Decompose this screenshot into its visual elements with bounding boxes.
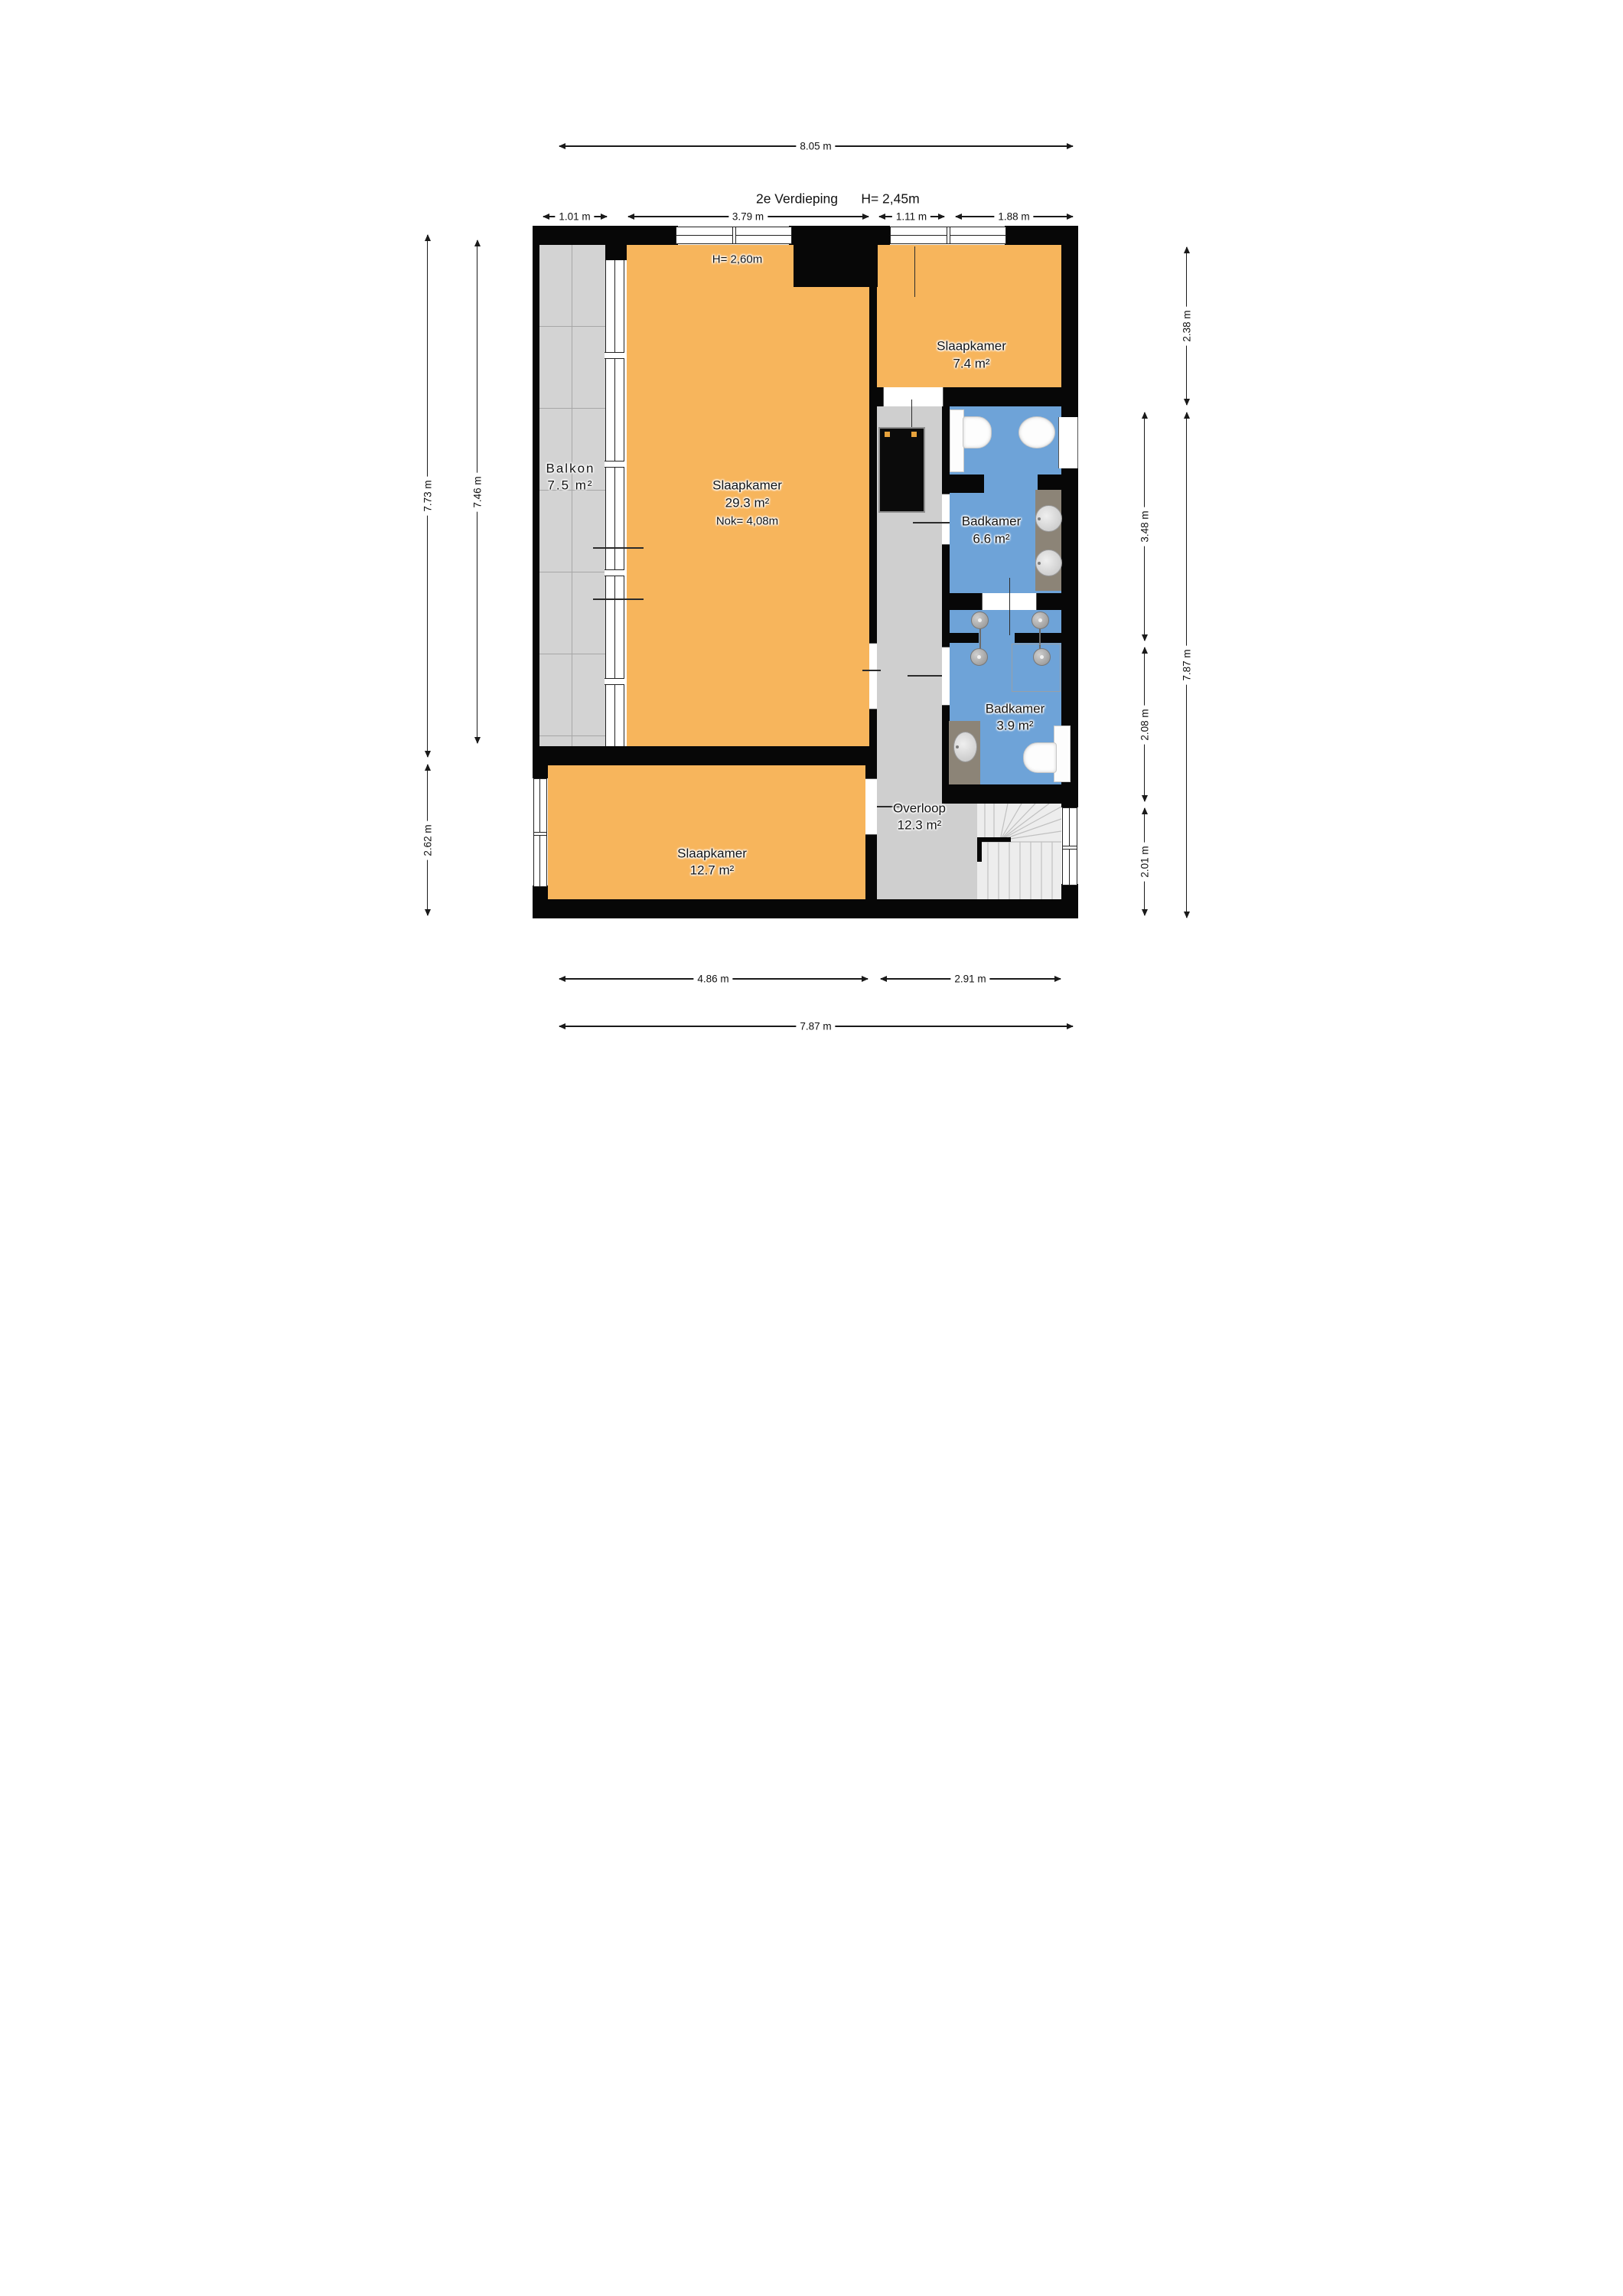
dimension-left-outer: 7.73 m xyxy=(422,234,433,758)
dimension-label: 4.86 m xyxy=(693,974,732,985)
wall xyxy=(533,226,678,245)
floor-title: 2e Verdieping xyxy=(756,191,838,207)
glass-divider xyxy=(605,678,624,685)
door xyxy=(869,643,877,709)
dimension-left-inner: 7.46 m xyxy=(472,240,483,744)
door-recess xyxy=(1058,417,1078,468)
dimension-right-badkamer2: 2.08 m xyxy=(1139,647,1150,802)
glass-divider xyxy=(605,461,624,468)
wall xyxy=(942,784,1078,804)
wall xyxy=(942,593,982,610)
window-tick xyxy=(914,246,916,297)
window xyxy=(890,227,1006,244)
wall xyxy=(1015,633,1078,643)
balkon-tile-line xyxy=(572,245,572,746)
door-swing-tick xyxy=(911,400,913,427)
shower-icon xyxy=(1031,612,1049,629)
room-label-badkamer-klein: Badkamer xyxy=(986,703,1045,716)
door xyxy=(942,647,950,706)
room-area-badkamer-groot: 6.6 m² xyxy=(973,533,1009,546)
dimension-right-slaapkamer: 2.38 m xyxy=(1181,246,1192,406)
wall xyxy=(869,226,877,643)
dimension-label: 7.87 m xyxy=(1181,645,1192,684)
closet-handle xyxy=(911,432,917,437)
dimension-top-seg-slaapkamer: 3.79 m xyxy=(627,211,869,222)
dimension-label: 2.38 m xyxy=(1181,306,1192,345)
room-label-slaapkamer-onder: Slaapkamer xyxy=(677,847,747,860)
window xyxy=(533,778,547,887)
door xyxy=(865,778,877,835)
dimension-label: 3.79 m xyxy=(728,211,768,223)
dimension-label: 7.87 m xyxy=(796,1021,835,1032)
washbasin-icon xyxy=(1035,550,1062,576)
door-swing-tick xyxy=(913,522,950,523)
wall xyxy=(865,833,877,899)
door-swing-tick xyxy=(908,675,942,677)
room-area-overloop: 12.3 m² xyxy=(898,819,942,832)
room-label-slaapkamer-groot: Slaapkamer xyxy=(712,479,782,492)
stair-wall xyxy=(977,837,1011,842)
bidet-icon xyxy=(1018,416,1055,448)
wall xyxy=(942,633,979,643)
door-swing-tick xyxy=(593,598,644,600)
window xyxy=(1062,807,1077,885)
wall xyxy=(533,899,1078,918)
wall xyxy=(942,610,950,633)
room-area-slaapkamer-groot: 29.3 m² xyxy=(725,497,770,510)
toilet-icon xyxy=(963,416,992,448)
dimension-label: 1.11 m xyxy=(892,211,930,223)
floorplan-page: 8.05 m 1.01 m 3.79 m 1.11 m 1.88 m 2e Ve… xyxy=(406,0,1217,1148)
dimension-label: 2.01 m xyxy=(1139,842,1150,881)
glass-divider xyxy=(605,352,624,359)
wall xyxy=(1061,226,1078,807)
dimension-label: 7.73 m xyxy=(422,476,433,515)
dimension-label: 2.91 m xyxy=(950,974,989,985)
dimension-left-bottom: 2.62 m xyxy=(422,764,433,916)
shower-enclosure xyxy=(1012,644,1061,692)
balcony-glass-wall xyxy=(605,260,624,746)
wall xyxy=(533,243,539,746)
toilet-cistern xyxy=(950,409,964,472)
stairs xyxy=(977,804,1061,899)
dimension-label: 1.01 m xyxy=(555,211,594,223)
stair-wall xyxy=(977,837,982,862)
wall xyxy=(942,543,950,593)
wall xyxy=(942,475,984,493)
room-area-balkon: 7.5 m² xyxy=(547,479,593,492)
dimension-label: 8.05 m xyxy=(796,141,835,152)
wall xyxy=(533,746,877,765)
wall xyxy=(794,245,878,287)
dimension-label: 3.48 m xyxy=(1139,507,1150,546)
dimension-right-trap: 2.01 m xyxy=(1139,807,1150,916)
room-label-slaapkamer-klein: Slaapkamer xyxy=(937,340,1006,353)
toilet-icon xyxy=(1023,742,1057,773)
dimension-label: 2.62 m xyxy=(422,820,433,859)
door-swing-tick xyxy=(1009,578,1011,635)
room-note-slaapkamer-groot: Nok= 4,08m xyxy=(716,516,778,527)
dimension-label: 1.88 m xyxy=(994,211,1033,223)
room-slaapkamer-onder xyxy=(548,765,865,899)
dimension-top-seg-balkon: 1.01 m xyxy=(543,211,608,222)
dimension-bottom-seg-slaapkamer: 4.86 m xyxy=(559,974,869,984)
dimension-top-total: 8.05 m xyxy=(559,141,1074,152)
wall xyxy=(942,387,1078,406)
closet xyxy=(878,427,925,513)
room-area-slaapkamer-onder: 12.7 m² xyxy=(690,864,735,877)
dimension-top-seg-badkamer: 1.88 m xyxy=(955,211,1074,222)
dimension-right-total: 7.87 m xyxy=(1181,412,1192,918)
glass-frame-line xyxy=(614,260,615,746)
dimension-label: 2.08 m xyxy=(1139,705,1150,744)
shower-icon xyxy=(971,612,989,629)
room-area-slaapkamer-klein: 7.4 m² xyxy=(953,357,989,370)
dimension-bottom-total: 7.87 m xyxy=(559,1021,1074,1032)
room-area-badkamer-klein: 3.9 m² xyxy=(996,719,1033,732)
dimension-bottom-seg-overloop: 2.91 m xyxy=(880,974,1061,984)
door xyxy=(942,494,950,545)
door xyxy=(883,387,943,406)
dimension-top-seg-hal: 1.11 m xyxy=(878,211,945,222)
door-swing-tick xyxy=(593,547,644,549)
wall xyxy=(865,765,877,778)
room-label-badkamer-groot: Badkamer xyxy=(962,515,1021,528)
dimension-right-badkamer1: 3.48 m xyxy=(1139,412,1150,641)
washbasin-icon xyxy=(1035,505,1062,532)
room-label-balkon: Balkon xyxy=(546,462,595,475)
dimension-label: 7.46 m xyxy=(471,472,483,511)
glass-divider xyxy=(605,569,624,576)
wall xyxy=(1035,593,1078,610)
ceiling-note: H= 2,60m xyxy=(712,254,762,266)
room-balkon xyxy=(539,245,605,746)
wall xyxy=(533,746,548,778)
wall xyxy=(877,387,883,406)
wall xyxy=(605,245,627,260)
washbasin-icon xyxy=(953,732,977,762)
shower-icon xyxy=(970,648,988,666)
window xyxy=(676,227,792,244)
closet-handle xyxy=(885,432,890,437)
wall xyxy=(1061,884,1078,918)
door-swing-tick xyxy=(862,670,881,671)
room-label-overloop: Overloop xyxy=(893,802,946,815)
floor-ceiling-height: H= 2,45m xyxy=(861,191,919,207)
